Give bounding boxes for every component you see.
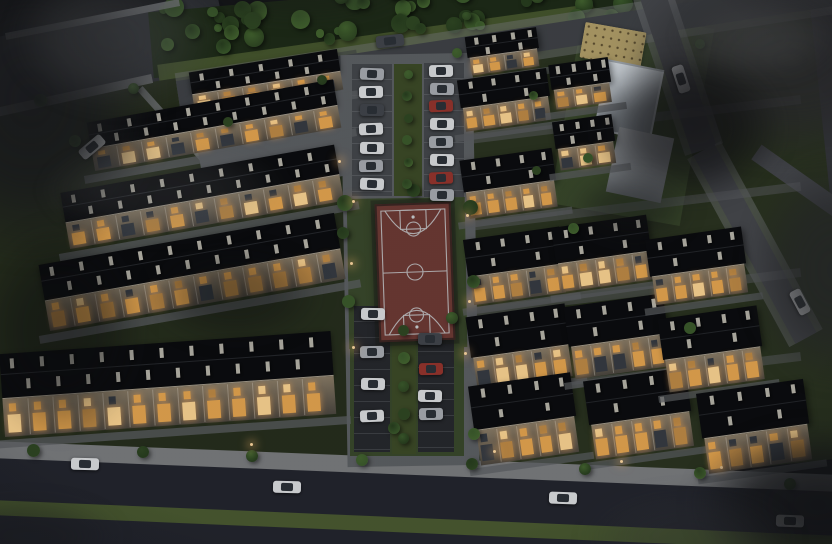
night-aerial-render (0, 0, 832, 544)
fog-cloud (0, 486, 148, 544)
fog-layer (0, 0, 832, 544)
fog-cloud (552, 161, 712, 256)
